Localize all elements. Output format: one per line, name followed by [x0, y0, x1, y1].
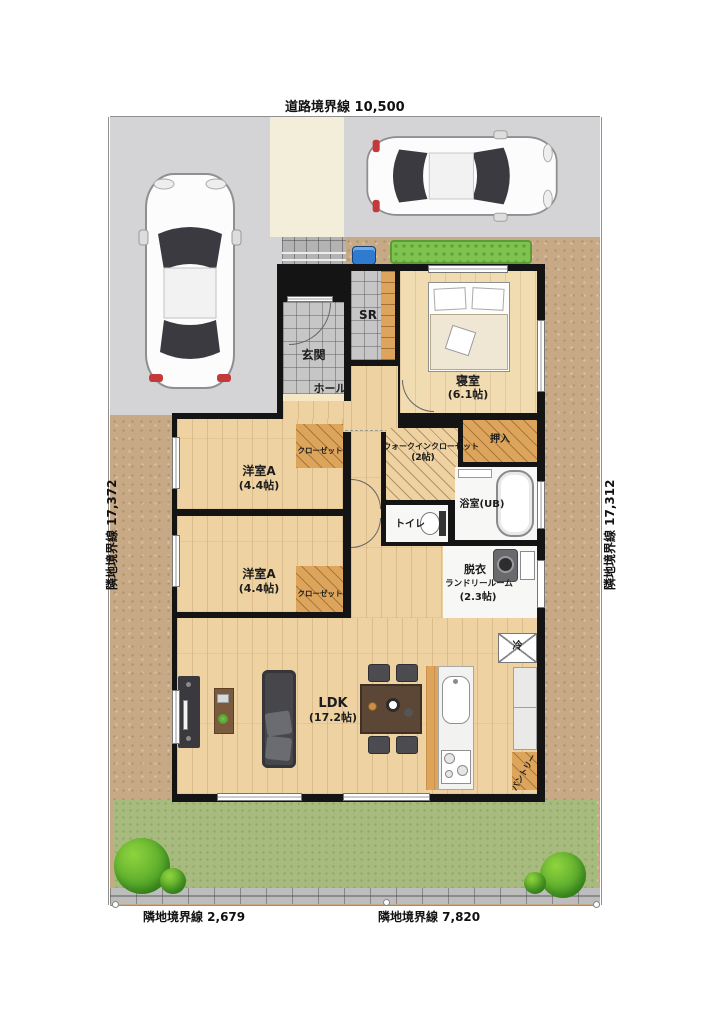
label-oshiire: 押入 — [470, 434, 530, 446]
car-icon — [362, 126, 562, 226]
sofa-cushion — [265, 736, 292, 761]
hall-floor — [351, 366, 398, 432]
car-horizontal — [362, 126, 562, 226]
bowl — [404, 708, 413, 717]
porch-step-line — [282, 259, 346, 261]
boundary-line-bottom — [110, 905, 600, 906]
sofa-cushion — [265, 710, 293, 736]
tree — [524, 872, 546, 894]
laundry-counter — [520, 551, 535, 580]
label-ldk-size: (17.2帖) — [291, 712, 375, 725]
tv — [183, 700, 188, 730]
plant-pot — [218, 714, 228, 724]
cupboard — [513, 667, 537, 750]
car-icon — [138, 168, 242, 394]
laundry-back-door — [537, 560, 545, 608]
boundary-label-left: 隣地境界線 17,372 — [103, 420, 120, 590]
bath-window — [537, 481, 545, 529]
western-room2-window — [172, 535, 180, 587]
burner — [457, 765, 468, 776]
boundary-label-bottom-right: 隣地境界線 7,820 — [378, 908, 480, 925]
floor-plan-canvas: 玄関 SR ホール 寝室 (6.1帖) ウォークインクローゼット (2帖) 押入… — [0, 0, 712, 1024]
entrance-door — [287, 296, 333, 302]
tv-board-knob — [186, 736, 191, 741]
tree — [540, 852, 586, 898]
bath-counter — [458, 469, 492, 478]
label-wic-size: (2帖) — [383, 453, 463, 463]
toilet-tank — [439, 511, 446, 536]
bedroom-window — [428, 265, 508, 273]
ldk-side-window — [172, 690, 180, 744]
label-western1-size: (4.4帖) — [209, 480, 309, 493]
label-laundry1: 脱衣 — [440, 564, 510, 577]
porch-step-line — [282, 252, 346, 254]
label-western1: 洋室A — [209, 465, 309, 479]
label-ldk: LDK — [295, 697, 371, 712]
label-bedroom: 寝室 — [420, 375, 516, 389]
kitchen-cabinet-face — [426, 666, 438, 790]
boundary-marker — [383, 899, 390, 906]
tv-board-knob — [186, 682, 191, 687]
burner — [444, 753, 455, 764]
boundary-marker — [593, 901, 600, 908]
label-toilet: トイレ — [385, 519, 435, 531]
blue-planter — [352, 246, 376, 265]
label-bedroom-size: (6.1帖) — [420, 389, 516, 402]
label-western2-size: (4.4帖) — [209, 583, 309, 596]
hedge-strip — [390, 240, 532, 264]
boundary-marker — [112, 901, 119, 908]
boundary-label-top: 道路境界線 10,500 — [285, 96, 405, 115]
label-laundry-size: (2.3帖) — [438, 592, 518, 604]
label-sr: SR — [348, 309, 388, 323]
cupboard-divider — [513, 707, 537, 708]
dining-chair — [396, 736, 418, 754]
ldk-garden-window — [343, 793, 430, 801]
plate — [386, 698, 400, 712]
ldk-garden-window — [217, 793, 302, 801]
garden-lawn — [113, 800, 597, 890]
label-wic: ウォークインクローゼット — [383, 442, 463, 451]
label-bath: 浴室(UB) — [450, 499, 514, 511]
label-laundry2: ランドリールーム — [434, 580, 524, 590]
label-western2: 洋室A — [209, 568, 309, 582]
bed-pillow — [433, 287, 466, 311]
burner — [445, 770, 453, 778]
western-room1-window — [172, 437, 180, 489]
car-vertical — [138, 168, 242, 394]
wic-floor — [386, 428, 458, 500]
boundary-line-top — [110, 116, 600, 117]
label-closet1: クローゼット — [297, 447, 343, 456]
label-genkan: 玄関 — [283, 349, 344, 363]
boundary-label-bottom-left: 隣地境界線 2,679 — [143, 908, 245, 925]
boundary-label-right: 隣地境界線 17,312 — [601, 420, 618, 590]
walkway-strip — [270, 117, 344, 237]
dining-chair — [396, 664, 418, 682]
label-closet2: クローゼット — [297, 590, 343, 599]
bed-pillow — [471, 287, 504, 311]
label-fridge: 冷 — [498, 641, 537, 653]
dining-chair — [368, 664, 390, 682]
tree — [160, 868, 186, 894]
faucet — [453, 679, 458, 684]
table-tray — [217, 694, 229, 703]
dining-chair — [368, 736, 390, 754]
bedroom-side-window — [537, 320, 545, 392]
label-hall: ホール — [300, 383, 360, 396]
